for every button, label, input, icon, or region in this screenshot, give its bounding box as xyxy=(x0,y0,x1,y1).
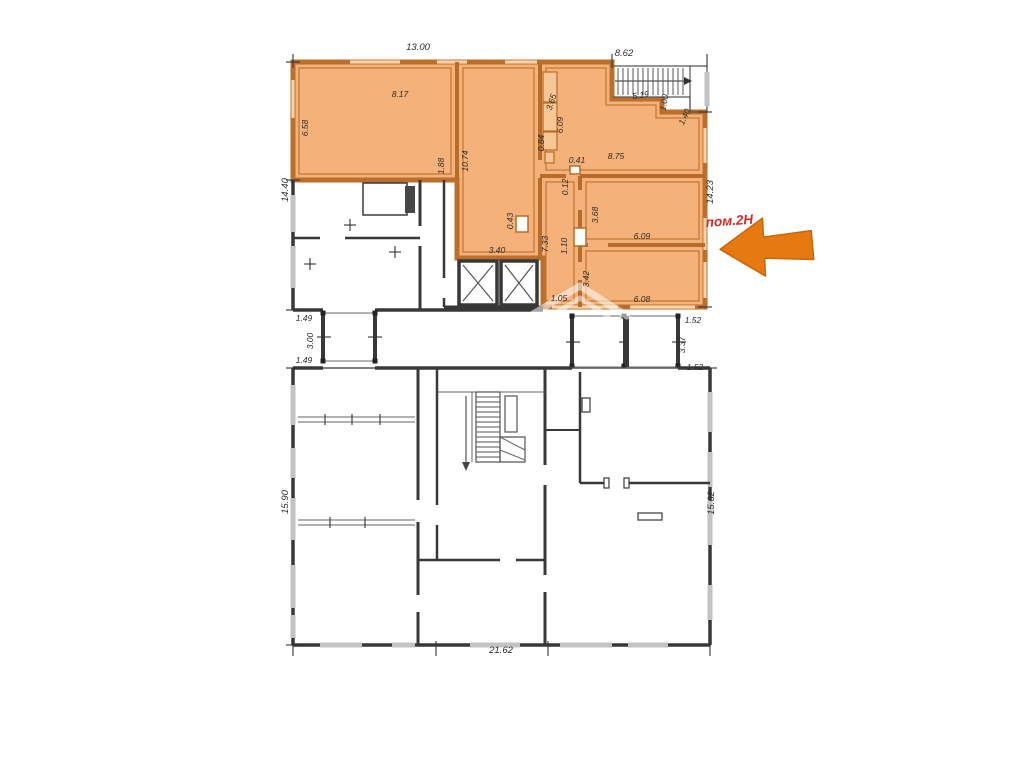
dimension-label: 15.62 xyxy=(706,490,717,514)
dimension-label: 3.42 xyxy=(581,270,591,287)
dimension-label: 10.74 xyxy=(460,150,470,172)
dimension-label: 8.62 xyxy=(615,48,634,59)
dimension-label: 8.17 xyxy=(392,89,409,99)
dimension-label: 1.05 xyxy=(551,293,568,303)
dimension-label: 3.40 xyxy=(489,245,506,255)
dimension-label: 7.33 xyxy=(540,235,550,252)
unit-label: пом.2Н xyxy=(705,212,754,230)
dimension-label: 1.52 xyxy=(687,362,704,372)
dimension-label: 0.43 xyxy=(505,212,515,229)
lower-plan xyxy=(293,368,710,645)
dimension-label: 1.52 xyxy=(685,315,702,325)
dimension-label: 3.00 xyxy=(305,332,315,349)
dimension-label: 15.90 xyxy=(280,489,291,513)
dimension-label: 14.23 xyxy=(705,179,716,203)
dimension-label: 1.00 xyxy=(658,93,671,111)
dimension-label: 13.00 xyxy=(406,42,430,53)
elevator-shafts xyxy=(459,261,537,305)
door-swing-marks xyxy=(304,219,401,270)
dimension-label: 14.40 xyxy=(280,177,291,201)
dimension-label: 6.58 xyxy=(300,119,310,136)
dimension-label: 3.37 xyxy=(677,336,687,353)
dimension-label: 1.10 xyxy=(559,237,569,254)
dimension-label: 0.12 xyxy=(560,178,570,195)
dimension-label: 0.84 xyxy=(536,134,546,151)
dimension-label: 6.09 xyxy=(555,116,565,133)
dimension-label: 6.08 xyxy=(634,294,651,304)
dimension-label: 1.49 xyxy=(296,355,313,365)
dimension-label: 1.49 xyxy=(296,313,313,323)
balcony-right-1 xyxy=(566,314,633,369)
floor-plan-canvas: 13.00 8.62 8.17 6.58 14.40 1.88 10.74 3.… xyxy=(0,0,1024,768)
dimension-label: 0.41 xyxy=(569,155,586,165)
dimension-label: 8.75 xyxy=(608,151,625,161)
dimension-label: 21.62 xyxy=(488,645,513,656)
floor-plan-image: 13.00 8.62 8.17 6.58 14.40 1.88 10.74 3.… xyxy=(0,0,1024,768)
dimension-label: 1.88 xyxy=(436,157,446,174)
dimension-label: 3.68 xyxy=(590,206,600,223)
balcony-left xyxy=(317,311,382,364)
dimension-label: 6.09 xyxy=(634,231,651,241)
balconies xyxy=(317,311,686,369)
